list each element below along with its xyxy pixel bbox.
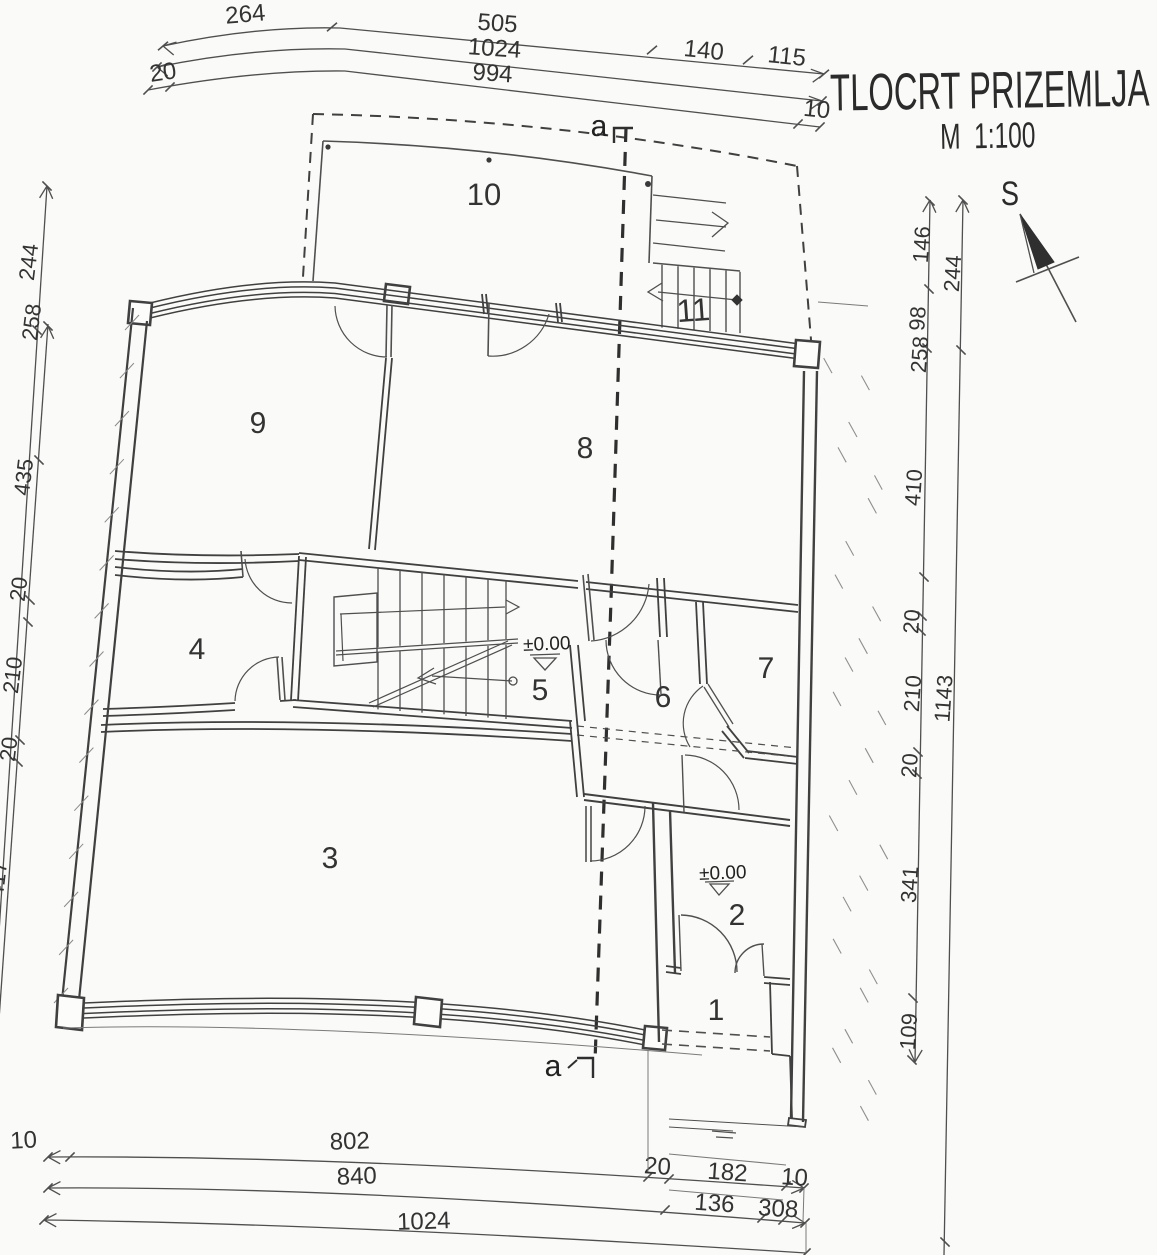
svg-text:435: 435 [9, 457, 38, 496]
svg-text:264: 264 [224, 0, 266, 30]
svg-text:TLOCRT PRIZEMLJA: TLOCRT PRIZEMLJA [830, 59, 1150, 122]
svg-text:210: 210 [899, 674, 927, 712]
svg-text:20: 20 [896, 752, 923, 778]
svg-text:140: 140 [682, 35, 725, 66]
svg-text:20: 20 [148, 57, 178, 87]
svg-text:146: 146 [908, 225, 936, 263]
svg-text:10: 10 [802, 95, 831, 125]
svg-text:a: a [545, 1050, 562, 1083]
svg-text:840: 840 [336, 1162, 377, 1190]
svg-text:410: 410 [900, 468, 928, 506]
svg-text:4: 4 [189, 633, 206, 666]
svg-text:20: 20 [0, 735, 22, 762]
svg-text:10: 10 [10, 1126, 38, 1154]
svg-text:±0.00: ±0.00 [523, 633, 571, 656]
svg-text:10: 10 [467, 177, 501, 212]
svg-text:M 1:100: M 1:100 [940, 114, 1036, 157]
svg-text:1143: 1143 [929, 674, 957, 723]
svg-text:20: 20 [898, 608, 925, 634]
svg-text:115: 115 [766, 41, 807, 72]
svg-text:1024: 1024 [397, 1207, 451, 1236]
svg-text:1: 1 [708, 994, 725, 1027]
svg-text:994: 994 [472, 59, 514, 89]
svg-text:9: 9 [250, 407, 267, 440]
svg-text:3: 3 [322, 842, 339, 875]
svg-text:10: 10 [780, 1163, 809, 1192]
svg-text:210: 210 [0, 655, 27, 694]
svg-text:244: 244 [14, 242, 43, 281]
svg-text:258: 258 [17, 302, 46, 341]
svg-text:6: 6 [655, 681, 672, 714]
svg-text:5: 5 [532, 674, 549, 707]
svg-text:a: a [591, 110, 608, 143]
svg-text:20: 20 [5, 575, 33, 602]
svg-text:11: 11 [675, 291, 711, 329]
svg-text:182: 182 [707, 1158, 749, 1188]
svg-text:8: 8 [577, 432, 594, 465]
svg-text:2: 2 [729, 899, 746, 932]
svg-text:8: 8 [784, 1196, 799, 1224]
svg-text:258: 258 [906, 335, 934, 373]
svg-text:244: 244 [939, 254, 967, 292]
svg-text:802: 802 [329, 1127, 370, 1155]
svg-text:341: 341 [896, 865, 924, 903]
svg-text:S: S [1001, 175, 1019, 213]
svg-text:109: 109 [895, 1012, 923, 1050]
svg-text:98: 98 [904, 305, 931, 331]
svg-text:7: 7 [758, 652, 775, 685]
